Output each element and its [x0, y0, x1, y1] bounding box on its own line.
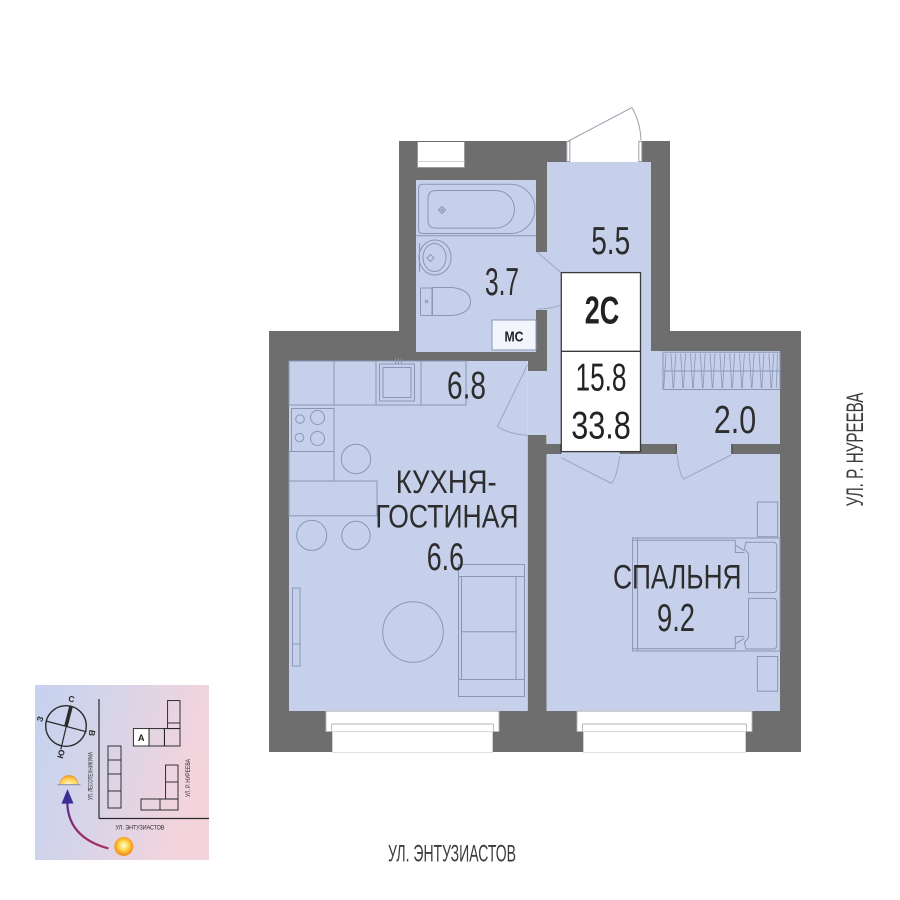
svg-text:МС: МС — [505, 329, 524, 346]
svg-text:УЛ. ЭНТУЗИАСТОВ: УЛ. ЭНТУЗИАСТОВ — [388, 841, 516, 868]
svg-text:УЛ. Р. НУРЕЕВА: УЛ. Р. НУРЕЕВА — [186, 759, 192, 797]
svg-text:А: А — [138, 733, 145, 743]
svg-text:6.8: 6.8 — [447, 365, 486, 408]
svg-text:ГОСТИНАЯ: ГОСТИНАЯ — [375, 498, 518, 534]
svg-text:33.8: 33.8 — [571, 405, 631, 448]
svg-text:УЛ. ЛЕСОТЕХНИКУМА: УЛ. ЛЕСОТЕХНИКУМА — [89, 752, 95, 800]
svg-text:УЛ. ЭНТУЗИАСТОВ: УЛ. ЭНТУЗИАСТОВ — [116, 826, 165, 832]
svg-text:6.6: 6.6 — [427, 536, 464, 579]
svg-text:УЛ. Р. НУРЕЕВА: УЛ. Р. НУРЕЕВА — [842, 393, 869, 507]
svg-text:9.2: 9.2 — [657, 597, 695, 640]
svg-text:5.5: 5.5 — [591, 220, 630, 263]
svg-text:2С: 2С — [585, 290, 620, 333]
svg-text:2.0: 2.0 — [714, 399, 756, 442]
svg-text:3.7: 3.7 — [485, 261, 519, 304]
svg-text:КУХНЯ-: КУХНЯ- — [396, 464, 497, 500]
svg-text:15.8: 15.8 — [576, 357, 627, 400]
svg-text:СПАЛЬНЯ: СПАЛЬНЯ — [613, 559, 742, 597]
